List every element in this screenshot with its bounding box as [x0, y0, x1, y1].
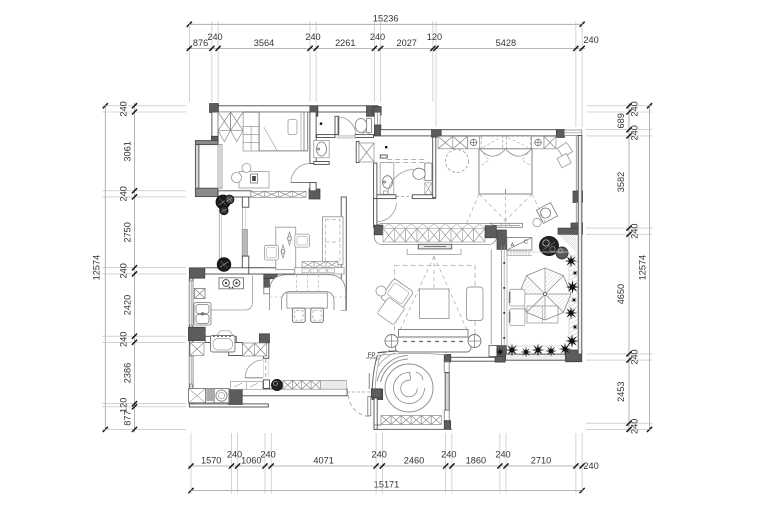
svg-text:240: 240: [630, 349, 640, 364]
svg-text:240: 240: [495, 450, 510, 460]
svg-text:240: 240: [630, 101, 640, 116]
svg-text:12574: 12574: [638, 255, 648, 281]
svg-text:3582: 3582: [616, 172, 626, 192]
svg-text:2460: 2460: [404, 456, 424, 466]
svg-text:240: 240: [260, 450, 275, 460]
svg-text:240: 240: [227, 450, 242, 460]
svg-text:4071: 4071: [313, 456, 333, 466]
svg-text:240: 240: [119, 263, 129, 278]
svg-text:240: 240: [372, 450, 387, 460]
svg-text:240: 240: [119, 101, 129, 116]
svg-text:240: 240: [583, 35, 598, 45]
svg-text:876: 876: [193, 38, 208, 48]
svg-text:2261: 2261: [335, 38, 355, 48]
svg-text:A: A: [511, 243, 515, 249]
svg-text:15171: 15171: [374, 480, 400, 490]
svg-text:240: 240: [207, 32, 222, 42]
svg-text:C: C: [524, 240, 528, 246]
svg-text:240: 240: [305, 32, 320, 42]
svg-text:5428: 5428: [496, 38, 516, 48]
svg-text:2453: 2453: [616, 381, 626, 401]
svg-text:1060: 1060: [241, 456, 261, 466]
svg-text:2386: 2386: [123, 363, 133, 383]
svg-text:240: 240: [441, 450, 456, 460]
svg-text:12574: 12574: [92, 255, 102, 281]
svg-text:3564: 3564: [254, 38, 274, 48]
svg-text:2027: 2027: [396, 38, 416, 48]
svg-text:689: 689: [616, 113, 626, 128]
svg-text:240: 240: [630, 224, 640, 239]
svg-text:240: 240: [119, 332, 129, 347]
svg-text:240: 240: [583, 461, 598, 471]
svg-text:2420: 2420: [123, 295, 133, 315]
svg-text:2750: 2750: [123, 222, 133, 242]
svg-text:1570: 1570: [201, 456, 221, 466]
svg-text:877: 877: [123, 410, 133, 425]
svg-text:240: 240: [630, 419, 640, 434]
svg-text:240: 240: [119, 186, 129, 201]
svg-text:240: 240: [370, 32, 385, 42]
svg-text:1860: 1860: [466, 456, 486, 466]
svg-text:240: 240: [630, 125, 640, 140]
svg-text:120: 120: [427, 32, 442, 42]
svg-text:4650: 4650: [616, 284, 626, 304]
svg-text:2710: 2710: [531, 456, 551, 466]
svg-text:3061: 3061: [123, 141, 133, 161]
svg-text:15236: 15236: [373, 14, 399, 24]
